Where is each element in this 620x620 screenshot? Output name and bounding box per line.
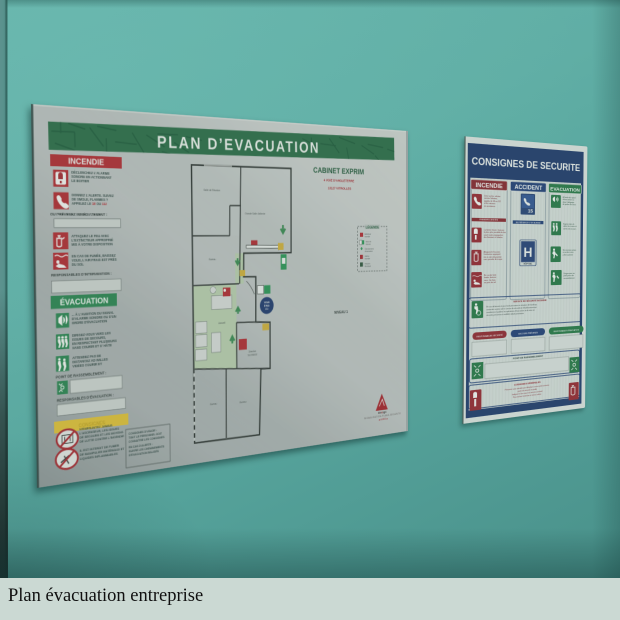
svg-text:INCENDIE: INCENDIE: [476, 182, 503, 190]
svg-text:Accueil: Accueil: [218, 321, 225, 325]
svg-text:de quitter les lieux: de quitter les lieux: [563, 204, 577, 207]
svg-text:DU SOL: DU SOL: [72, 263, 85, 267]
svg-text:LÉGENDE: LÉGENDE: [366, 224, 379, 230]
svg-text:OU PRÉVENEZ IMMÉDIATEMENT :: OU PRÉVENEZ IMMÉDIATEMENT :: [50, 211, 107, 216]
svg-text:d'évacuation: d'évacuation: [365, 250, 373, 253]
svg-text:Salle de Réunion: Salle de Réunion: [204, 188, 221, 192]
svg-text:des flammes et fumées: des flammes et fumées: [484, 237, 504, 240]
svg-text:Attaquez le feu avec: Attaquez le feu avec: [484, 251, 501, 254]
svg-text:Grande Salle d'attente: Grande Salle d'attente: [245, 212, 266, 216]
svg-text:Ne revenez jamais: Ne revenez jamais: [563, 249, 577, 251]
svg-text:La bonne heure : baissez: La bonne heure : baissez: [484, 229, 505, 232]
svg-text:en assistance: en assistance: [484, 205, 496, 208]
svg-text:le plus près possible du feu: le plus près possible du feu: [484, 231, 507, 234]
svg-text:l'extincteur approprié: l'extincteur approprié: [484, 253, 501, 256]
svg-text:sans prendre de risque: sans prendre de risque: [484, 258, 503, 261]
svg-text:rassemblement: rassemblement: [563, 277, 574, 280]
svg-text:en arrière sans: en arrière sans: [563, 252, 574, 254]
svg-text:LE BOITIER: LE BOITIER: [71, 179, 89, 183]
svg-text:avant toute propagation: avant toute propagation: [484, 234, 504, 237]
svg-text:incendie: incendie: [365, 258, 371, 261]
svg-text:électrique: électrique: [365, 265, 372, 268]
svg-text:H: H: [523, 246, 532, 261]
svg-text:ACCIDENT: ACCIDENT: [515, 184, 543, 192]
svg-text:Bureau: Bureau: [209, 257, 216, 261]
svg-text:INCENDIE: INCENDIE: [68, 156, 104, 167]
svg-text:En cas de forte: En cas de forte: [484, 274, 497, 277]
svg-text:4 VOIE D'ANGLETERRE: 4 VOIE D'ANGLETERRE: [324, 178, 355, 183]
svg-text:incendie: incendie: [365, 236, 371, 238]
svg-text:PREMIERS GESTES: PREMIERS GESTES: [479, 219, 498, 222]
svg-text:15: 15: [528, 208, 534, 214]
svg-text:secours: secours: [366, 243, 372, 246]
svg-text:EN PRÉSENCE D'UN BLESSÉ: EN PRÉSENCE D'UN BLESSÉ: [516, 221, 541, 224]
svg-text:y être autorisé: y être autorisé: [563, 254, 574, 256]
svg-text:13127 VITROLLES: 13127 VITROLLES: [328, 186, 351, 191]
svg-text:MIS À VOTRE DISPOSITION: MIS À VOTRE DISPOSITION: [72, 241, 114, 246]
svg-text:CABINET EXPRIM: CABINET EXPRIM: [313, 166, 364, 176]
svg-text:mis à votre disposition: mis à votre disposition: [484, 256, 503, 259]
svg-text:sorties de secours: sorties de secours: [563, 228, 577, 231]
svg-text:ICI: ICI: [266, 307, 269, 311]
svg-text:NIVEAU 1: NIVEAU 1: [334, 310, 348, 315]
svg-text:est près du sol: est près du sol: [484, 282, 496, 285]
svg-text:APPELEZ LE 18 OU 112: APPELEZ LE 18 OU 112: [72, 202, 107, 206]
svg-text:calme les issues et: calme les issues et: [563, 225, 577, 228]
